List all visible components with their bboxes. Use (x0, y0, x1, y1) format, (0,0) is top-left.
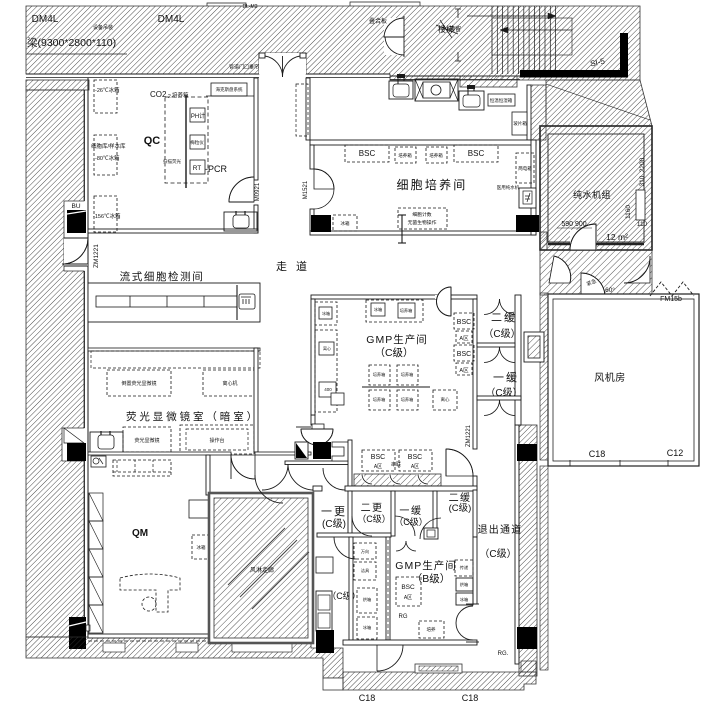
svg-text:梁(9300*2800*110): 梁(9300*2800*110) (27, 36, 116, 49)
svg-text:BU: BU (71, 203, 80, 210)
svg-text:冰箱: 冰箱 (322, 310, 330, 316)
svg-text:走道: 走道 (276, 259, 316, 273)
svg-text:M1521: M1521 (303, 180, 309, 199)
svg-text:PH计: PH计 (191, 112, 205, 120)
svg-text:设备吊装: 设备吊装 (93, 24, 113, 31)
svg-text:DL-M2: DL-M2 (242, 4, 257, 10)
svg-text:预留: 预留 (449, 25, 461, 33)
svg-text:离心机: 离心机 (222, 380, 237, 387)
svg-text:冰箱: 冰箱 (341, 220, 350, 227)
svg-text:叠合板: 叠合板 (369, 17, 387, 25)
svg-text:BSC: BSC (401, 584, 415, 591)
svg-text:GMP生产间: GMP生产间 (366, 333, 427, 346)
svg-text:培养箱: 培养箱 (429, 152, 443, 159)
svg-text:BSC: BSC (359, 149, 376, 158)
svg-text:C12: C12 (667, 448, 684, 458)
svg-text:纯水机组: 纯水机组 (573, 189, 611, 200)
svg-text:C18: C18 (359, 693, 376, 703)
svg-text:-PCR: -PCR (205, 164, 227, 174)
svg-text:（C级）: （C级） (479, 548, 516, 560)
svg-text:培养: 培养 (427, 626, 436, 633)
svg-text:BSC: BSC (468, 149, 485, 158)
svg-text:-26℃冰箱: -26℃冰箱 (95, 86, 120, 94)
svg-text:烘箱: 烘箱 (363, 596, 371, 603)
svg-text:一更: 一更 (321, 506, 347, 518)
svg-text:（C级）: （C级） (357, 513, 391, 524)
svg-text:QC: QC (144, 135, 161, 147)
svg-text:洁具: 洁具 (361, 567, 370, 574)
svg-text:二缓: 二缓 (491, 311, 517, 324)
svg-text:ZM1221: ZM1221 (93, 244, 100, 268)
svg-text:细胞计数: 细胞计数 (412, 211, 431, 218)
svg-text:BSC: BSC (457, 319, 471, 326)
svg-text:DM4L: DM4L (158, 14, 185, 25)
svg-text:冰箱: 冰箱 (374, 306, 382, 313)
svg-text:细胞培养间: 细胞培养间 (396, 177, 467, 192)
svg-text:(C级): (C级) (322, 518, 346, 530)
svg-text:RT: RT (193, 165, 202, 172)
svg-text:M0921: M0921 (255, 182, 261, 201)
svg-text:CO2: CO2 (150, 90, 167, 99)
svg-text:串联: 串联 (391, 461, 401, 468)
svg-text:（C级）: （C级） (394, 516, 428, 527)
svg-text:A区: A区 (411, 464, 419, 470)
svg-text:荧光显微镜室（暗室）: 荧光显微镜室（暗室） (126, 410, 260, 423)
svg-text:烘箱: 烘箱 (460, 581, 468, 588)
svg-text:海克斯盘系统: 海克斯盘系统 (216, 86, 243, 93)
svg-text:一缓: 一缓 (493, 371, 519, 384)
svg-text:(C级): (C级) (449, 502, 472, 514)
svg-text:操作台: 操作台 (209, 437, 224, 444)
svg-text:GMP生产间: GMP生产间 (395, 559, 456, 572)
svg-text:培养箱: 培养箱 (400, 307, 413, 314)
svg-text:退出通道: 退出通道 (478, 523, 523, 536)
svg-text:2200: 2200 (639, 157, 646, 172)
svg-text:冰箱: 冰箱 (363, 624, 371, 631)
svg-text:冰箱: 冰箱 (197, 544, 206, 551)
svg-text:医用纯水机: 医用纯水机 (497, 184, 520, 191)
svg-text:倒置荧光显微镜: 倒置荧光显微镜 (121, 380, 156, 387)
svg-text:BSC: BSC (457, 351, 471, 358)
svg-text:培养箱: 培养箱 (373, 371, 386, 378)
svg-text:流式细胞检测间: 流式细胞检测间 (120, 270, 205, 283)
svg-text:玻片箱: 玻片箱 (513, 120, 527, 127)
svg-text:离心: 离心 (441, 396, 450, 403)
svg-text:DM4L: DM4L (32, 14, 59, 25)
svg-text:万向: 万向 (361, 548, 369, 555)
svg-text:梅粒仪: 梅粒仪 (190, 139, 204, 146)
svg-text:二更: 二更 (361, 502, 384, 514)
svg-text:管道门口垂帘: 管道门口垂帘 (229, 64, 259, 71)
svg-text:无菌生物操作: 无菌生物操作 (408, 219, 437, 226)
svg-text:BSC: BSC (408, 454, 422, 461)
svg-text:C18: C18 (462, 693, 479, 703)
svg-text:QM: QM (132, 528, 148, 539)
svg-text:400: 400 (324, 387, 332, 392)
svg-text:310: 310 (639, 175, 646, 186)
svg-text:风机房: 风机房 (594, 371, 626, 384)
svg-text:A区: A区 (374, 464, 382, 470)
svg-text:两电箱: 两电箱 (518, 165, 532, 172)
svg-text:传递: 传递 (460, 564, 469, 571)
svg-text:A区: A区 (459, 335, 469, 342)
svg-text:（B级）: （B级） (412, 573, 451, 585)
svg-text:110: 110 (637, 221, 648, 228)
svg-text:一缓: 一缓 (399, 504, 422, 517)
svg-text:离心: 离心 (323, 345, 331, 351)
svg-text:培养箱: 培养箱 (172, 91, 189, 99)
svg-text:RG.: RG. (498, 651, 509, 657)
svg-text:培养箱: 培养箱 (373, 396, 386, 403)
svg-text:1160: 1160 (625, 205, 632, 219)
svg-text:（C级）: （C级） (483, 328, 520, 340)
svg-text:A区: A区 (404, 595, 412, 601)
svg-text:细胞库/样本库: 细胞库/样本库 (91, 142, 126, 150)
svg-text:A区: A区 (459, 367, 469, 374)
svg-text:-156℃冰箱: -156℃冰箱 (93, 212, 121, 220)
svg-text:冰箱: 冰箱 (460, 596, 468, 603)
svg-text:60°: 60° (605, 286, 615, 294)
svg-text:（C级）: （C级） (374, 347, 413, 359)
svg-text:-80℃冰箱: -80℃冰箱 (95, 154, 120, 162)
svg-text:培养箱: 培养箱 (401, 396, 414, 403)
svg-text:荧光显微镜: 荧光显微镜 (134, 437, 159, 444)
svg-text:ZM1221: ZM1221 (466, 424, 472, 447)
svg-text:风淋走廊: 风淋走廊 (250, 566, 274, 574)
svg-text:2: 2 (168, 94, 171, 100)
svg-text:恒温恒湿箱: 恒温恒湿箱 (490, 97, 513, 104)
svg-text:RG: RG (399, 614, 408, 620)
svg-text:C18: C18 (589, 449, 606, 459)
svg-text:培养箱: 培养箱 (401, 371, 414, 378)
svg-text:12 m²: 12 m² (606, 232, 628, 242)
svg-text:BSC: BSC (371, 454, 385, 461)
svg-text:扫描荧光: 扫描荧光 (163, 158, 181, 165)
svg-text:培养箱: 培养箱 (398, 152, 412, 159)
svg-text:590 900: 590 900 (561, 221, 586, 228)
svg-text:FM15b: FM15b (660, 296, 682, 303)
